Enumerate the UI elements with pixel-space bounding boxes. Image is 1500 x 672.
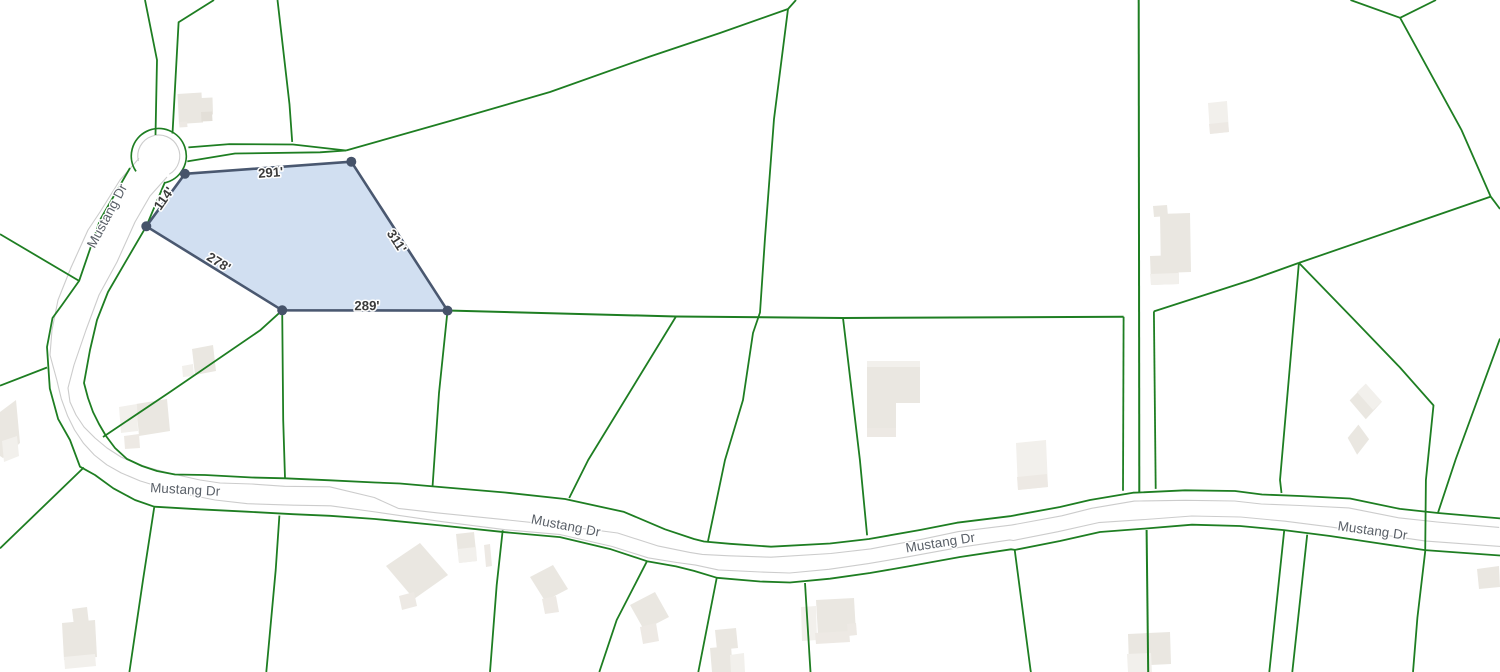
svg-text:291': 291' [258,164,284,181]
svg-text:289': 289' [354,298,379,313]
